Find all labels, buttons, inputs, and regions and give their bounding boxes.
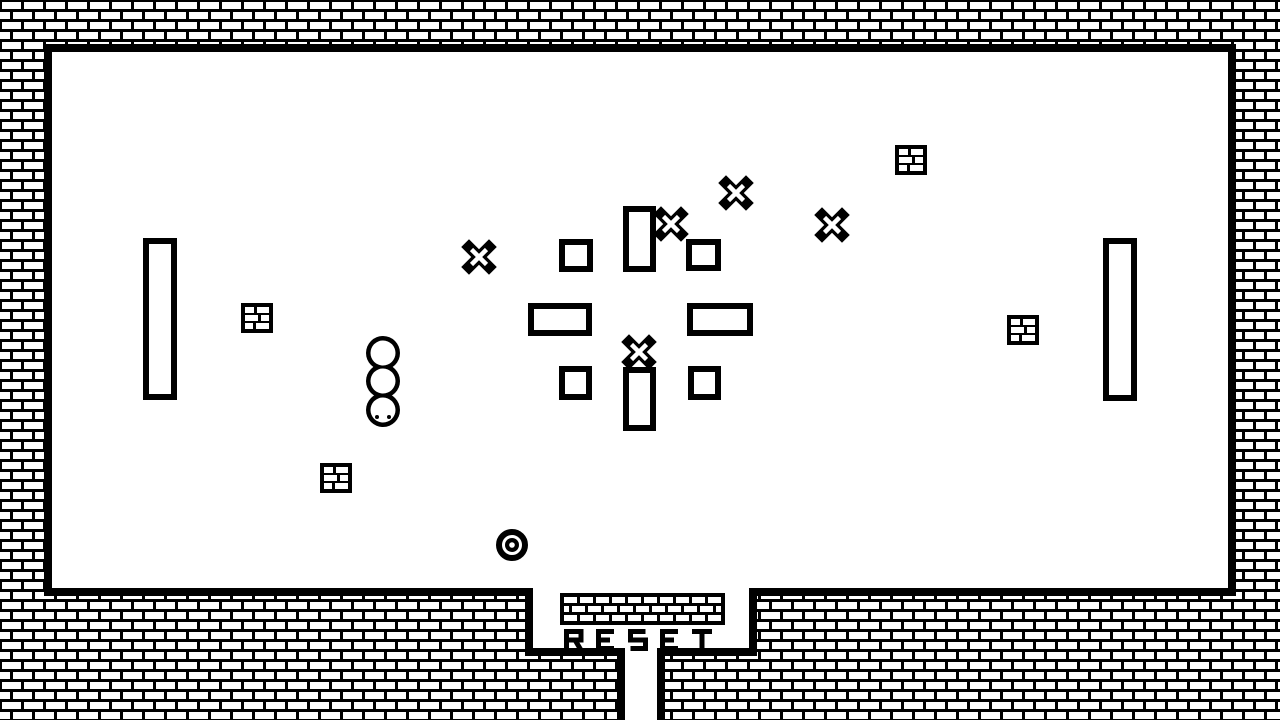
brick: [222, 22, 241, 29]
brick: [1036, 602, 1055, 609]
brick: [1146, 622, 1165, 629]
brick: [13, 312, 32, 319]
brick: [1256, 542, 1275, 549]
brick: [739, 32, 758, 39]
brick: [420, 22, 439, 29]
brick: [629, 32, 648, 39]
brick: [1168, 702, 1187, 709]
brick: [178, 602, 197, 609]
brick: [266, 2, 285, 9]
brick: [486, 702, 505, 709]
brick: [24, 462, 43, 469]
brick: [838, 622, 857, 629]
brick: [68, 662, 87, 669]
brick: [255, 632, 274, 639]
brick: [1256, 482, 1275, 489]
brick: [783, 632, 802, 639]
brick: [354, 602, 373, 609]
brick: [343, 12, 362, 19]
brick: [365, 32, 384, 39]
brick: [0, 52, 10, 59]
brick: [816, 602, 835, 609]
brick: [1267, 392, 1280, 399]
brick: [497, 672, 516, 679]
brick: [475, 32, 494, 39]
brick: [937, 12, 956, 19]
brick: [552, 2, 571, 9]
brick: [13, 132, 32, 139]
brick: [915, 652, 934, 659]
brick: [1179, 652, 1198, 659]
brick: [508, 22, 527, 29]
brick: [1080, 642, 1099, 649]
brick: [761, 32, 780, 39]
brick: [13, 152, 32, 159]
brick-face: [1011, 319, 1020, 325]
brick: [1025, 32, 1044, 39]
brick-face: [692, 597, 705, 603]
brick: [13, 52, 32, 59]
brick: [750, 662, 769, 669]
brick: [332, 642, 351, 649]
brick: [838, 662, 857, 669]
brick: [387, 612, 406, 619]
brick: [299, 612, 318, 619]
brick: [1091, 712, 1110, 719]
brick: [739, 712, 758, 719]
brick: [1069, 712, 1088, 719]
brick: [222, 2, 241, 9]
brick: [24, 362, 43, 369]
brick: [464, 602, 483, 609]
brick: [1245, 412, 1264, 419]
brick: [816, 702, 835, 709]
brick: [24, 502, 43, 509]
brick: [1234, 2, 1253, 9]
brick: [79, 652, 98, 659]
brick: [970, 2, 989, 9]
brick: [651, 12, 670, 19]
brick: [1014, 22, 1033, 29]
brick: [442, 622, 461, 629]
brick: [1245, 352, 1264, 359]
brick: [1267, 492, 1280, 499]
brick: [1113, 652, 1132, 659]
brick: [1267, 332, 1280, 339]
brick: [904, 682, 923, 689]
brick: [926, 622, 945, 629]
brick-face: [604, 606, 617, 612]
brick-face: [716, 606, 721, 612]
brick: [453, 712, 472, 719]
brick: [1245, 112, 1264, 119]
brick-face: [1011, 335, 1019, 341]
brick: [255, 692, 274, 699]
brick: [354, 2, 373, 9]
brick: [1267, 52, 1280, 59]
brick: [1146, 602, 1165, 609]
brick: [1267, 632, 1280, 639]
brick: [948, 702, 967, 709]
brick: [1234, 662, 1253, 669]
brick: [1245, 372, 1264, 379]
brick: [134, 702, 153, 709]
brick: [1256, 302, 1275, 309]
brick: [0, 552, 10, 559]
brick: [266, 602, 285, 609]
brick: [13, 432, 32, 439]
brick: [1267, 372, 1280, 379]
brick: [1245, 532, 1264, 539]
brick: [123, 672, 142, 679]
brick: [1212, 642, 1231, 649]
brick: [442, 2, 461, 9]
brick: [244, 622, 263, 629]
brick: [1223, 652, 1242, 659]
brick: [783, 672, 802, 679]
brick: [442, 22, 461, 29]
brick: [24, 602, 43, 609]
brick: [2, 62, 21, 69]
brick: [24, 122, 43, 129]
brick: [1234, 82, 1253, 89]
brick: [365, 612, 384, 619]
brick: [673, 12, 692, 19]
brick: [398, 702, 417, 709]
brick: [475, 12, 494, 19]
brick: [1245, 312, 1264, 319]
creature-eye: [375, 415, 379, 419]
brick: [178, 22, 197, 29]
brick: [1234, 22, 1253, 29]
brick: [376, 622, 395, 629]
brick: [464, 642, 483, 649]
brick: [343, 712, 362, 719]
brick: [398, 2, 417, 9]
brick: [123, 652, 142, 659]
brick: [101, 672, 120, 679]
brick: [409, 692, 428, 699]
brick: [1168, 642, 1187, 649]
brick: [24, 402, 43, 409]
brick: [937, 632, 956, 639]
brick: [838, 22, 857, 29]
brick: [1245, 12, 1264, 19]
creature-eye: [387, 415, 391, 419]
worm-creature: [366, 336, 400, 427]
brick: [717, 32, 736, 39]
brick: [739, 672, 758, 679]
brick: [0, 372, 10, 379]
brick: [959, 612, 978, 619]
brick: [24, 342, 43, 349]
brick: [1267, 152, 1280, 159]
brick: [0, 72, 10, 79]
brick: [57, 652, 76, 659]
brick: [167, 632, 186, 639]
brick: [871, 692, 890, 699]
brick: [145, 672, 164, 679]
brick: [596, 22, 615, 29]
brick: [893, 672, 912, 679]
brick: [926, 602, 945, 609]
brick: [1234, 202, 1253, 209]
brick: [1201, 12, 1220, 19]
brick-block: [1007, 315, 1039, 345]
brick: [761, 12, 780, 19]
brick-face: [700, 606, 713, 612]
brick: [420, 642, 439, 649]
brick: [1234, 182, 1253, 189]
brick: [860, 602, 879, 609]
brick: [805, 32, 824, 39]
brick: [772, 2, 791, 9]
brick: [1025, 672, 1044, 679]
brick: [310, 602, 329, 609]
brick: [376, 702, 395, 709]
x-mark: [469, 247, 489, 267]
brick: [35, 712, 54, 719]
brick: [431, 12, 450, 19]
brick: [552, 662, 571, 669]
brick: [24, 662, 43, 669]
brick: [35, 12, 54, 19]
white-block: [689, 242, 718, 268]
brick: [1245, 52, 1264, 59]
brick: [1113, 12, 1132, 19]
brick-face: [668, 606, 681, 612]
brick: [1179, 712, 1198, 719]
brick-face: [708, 615, 721, 621]
brick: [343, 672, 362, 679]
brick: [519, 32, 538, 39]
brick: [24, 542, 43, 549]
brick: [596, 702, 615, 709]
brick: [1212, 702, 1231, 709]
brick: [46, 602, 65, 609]
brick: [1234, 122, 1253, 129]
brick: [1256, 242, 1275, 249]
brick: [1179, 672, 1198, 679]
brick-face: [620, 606, 633, 612]
brick: [1267, 432, 1280, 439]
brick: [497, 712, 516, 719]
brick: [0, 112, 10, 119]
brick: [1245, 92, 1264, 99]
brick: [200, 662, 219, 669]
x-mark: [822, 215, 842, 235]
brick-face: [899, 165, 907, 171]
brick: [1223, 612, 1242, 619]
brick: [882, 642, 901, 649]
brick: [321, 12, 340, 19]
brick: [904, 702, 923, 709]
brick: [123, 692, 142, 699]
brick: [794, 642, 813, 649]
brick: [1157, 632, 1176, 639]
brick: [222, 702, 241, 709]
brick: [68, 622, 87, 629]
brick: [57, 12, 76, 19]
brick: [1234, 162, 1253, 169]
brick: [0, 632, 10, 639]
brick: [0, 32, 10, 39]
brick: [420, 2, 439, 9]
brick: [1234, 302, 1253, 309]
brick: [1256, 142, 1275, 149]
brick: [794, 682, 813, 689]
brick: [288, 662, 307, 669]
brick: [959, 32, 978, 39]
brick: [244, 702, 263, 709]
brick: [277, 612, 296, 619]
brick: [981, 612, 1000, 619]
brick-block: [241, 303, 273, 333]
white-block: [531, 306, 589, 333]
brick: [0, 232, 10, 239]
brick: [2, 462, 21, 469]
brick: [387, 692, 406, 699]
brick: [1245, 592, 1264, 599]
brick: [1234, 442, 1253, 449]
brick: [178, 702, 197, 709]
brick: [277, 632, 296, 639]
brick: [35, 612, 54, 619]
brick: [1091, 32, 1110, 39]
brick-face: [692, 615, 705, 621]
brick: [134, 622, 153, 629]
brick: [849, 672, 868, 679]
brick: [1267, 312, 1280, 319]
brick: [1124, 642, 1143, 649]
brick: [1168, 602, 1187, 609]
brick: [1256, 22, 1275, 29]
brick: [1245, 572, 1264, 579]
brick: [1113, 632, 1132, 639]
brick: [585, 32, 604, 39]
brick: [277, 12, 296, 19]
brick: [805, 692, 824, 699]
brick: [1267, 92, 1280, 99]
brick: [761, 652, 780, 659]
brick: [1223, 692, 1242, 699]
brick: [0, 172, 10, 179]
brick: [2, 382, 21, 389]
brick: [1146, 702, 1165, 709]
brick: [211, 652, 230, 659]
brick: [24, 2, 43, 9]
brick: [1267, 692, 1280, 699]
brick-face: [580, 615, 593, 621]
brick: [585, 692, 604, 699]
brick: [46, 662, 65, 669]
brick: [1058, 642, 1077, 649]
brick: [1146, 642, 1165, 649]
brick: [1080, 682, 1099, 689]
brick-face: [660, 597, 673, 603]
brick: [1234, 142, 1253, 149]
brick: [112, 682, 131, 689]
brick: [24, 222, 43, 229]
brick: [2, 622, 21, 629]
brick: [662, 22, 681, 29]
brick: [13, 72, 32, 79]
brick: [277, 672, 296, 679]
brick: [695, 32, 714, 39]
brick-face: [1023, 319, 1035, 325]
brick: [904, 602, 923, 609]
brick: [398, 22, 417, 29]
brick: [13, 332, 32, 339]
game-canvas[interactable]: [0, 0, 1280, 720]
brick: [761, 632, 780, 639]
brick: [1058, 22, 1077, 29]
brick: [0, 512, 10, 519]
brick-face: [684, 606, 697, 612]
brick: [431, 612, 450, 619]
brick: [1256, 502, 1275, 509]
brick-face: [335, 483, 348, 489]
brick-face: [899, 157, 912, 163]
brick: [706, 702, 725, 709]
brick: [464, 702, 483, 709]
brick: [497, 12, 516, 19]
brick: [1256, 462, 1275, 469]
brick: [1267, 172, 1280, 179]
brick: [0, 392, 10, 399]
brick: [211, 632, 230, 639]
brick: [1245, 272, 1264, 279]
brick-face: [1011, 327, 1024, 333]
brick: [816, 622, 835, 629]
brick: [607, 32, 626, 39]
brick: [1267, 232, 1280, 239]
brick: [321, 672, 340, 679]
brick: [1058, 602, 1077, 609]
brick: [1234, 702, 1253, 709]
brick: [1091, 652, 1110, 659]
brick: [904, 642, 923, 649]
brick: [1102, 622, 1121, 629]
brick: [893, 632, 912, 639]
brick: [13, 112, 32, 119]
brick: [2, 202, 21, 209]
brick: [189, 32, 208, 39]
brick: [629, 12, 648, 19]
brick: [552, 702, 571, 709]
brick: [453, 672, 472, 679]
brick-block: [320, 463, 352, 493]
brick: [244, 22, 263, 29]
brick: [893, 12, 912, 19]
brick: [277, 652, 296, 659]
brick: [1234, 642, 1253, 649]
x-mark: [629, 342, 649, 362]
brick: [816, 2, 835, 9]
brick: [409, 632, 428, 639]
brick: [442, 642, 461, 649]
brick: [1256, 682, 1275, 689]
brick: [882, 682, 901, 689]
brick: [541, 32, 560, 39]
brick: [695, 12, 714, 19]
brick: [1014, 642, 1033, 649]
brick: [1245, 32, 1264, 39]
brick: [992, 2, 1011, 9]
brick: [68, 602, 87, 609]
brick: [882, 702, 901, 709]
brick: [673, 692, 692, 699]
